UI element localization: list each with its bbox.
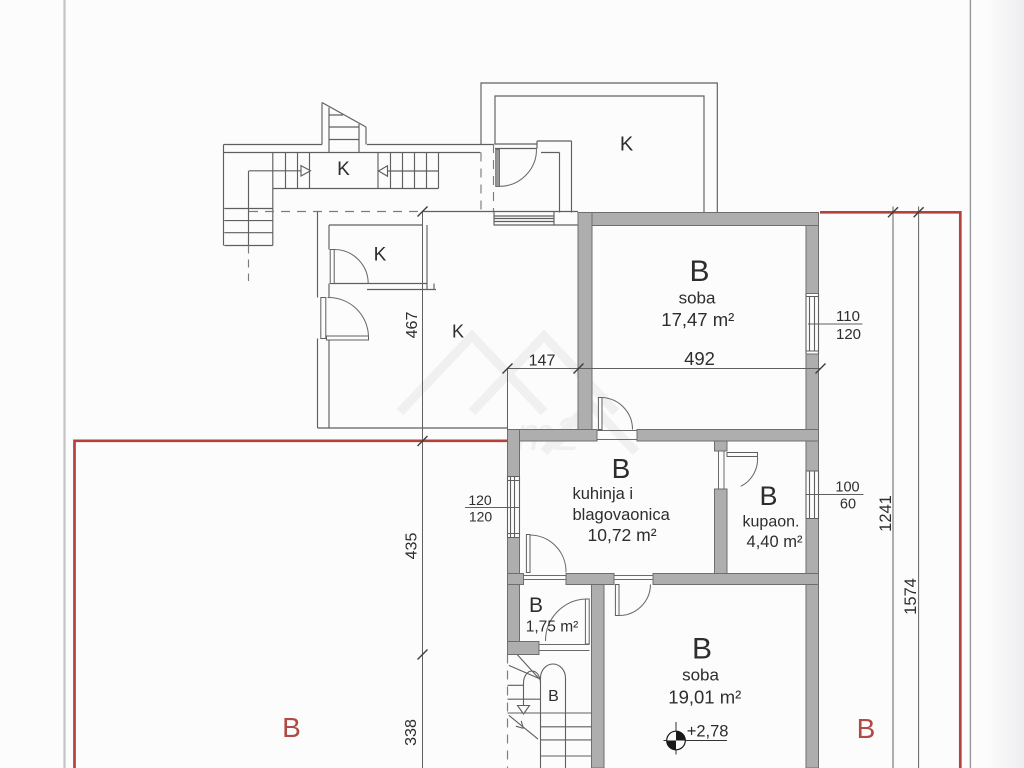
svg-text:147: 147 xyxy=(529,353,556,370)
svg-text:B: B xyxy=(548,688,559,705)
svg-text:1241: 1241 xyxy=(877,495,895,532)
svg-text:492: 492 xyxy=(684,348,715,369)
svg-text:soba: soba xyxy=(679,288,716,307)
svg-text:60: 60 xyxy=(840,497,856,513)
svg-text:B: B xyxy=(692,633,712,666)
svg-text:10,72 m²: 10,72 m² xyxy=(588,525,657,545)
svg-text:K: K xyxy=(452,322,464,342)
svg-text:B: B xyxy=(759,481,777,511)
svg-text:17,47 m²: 17,47 m² xyxy=(661,309,734,330)
svg-text:100: 100 xyxy=(835,479,859,495)
svg-text:B: B xyxy=(689,255,709,288)
svg-text:B: B xyxy=(529,594,543,617)
svg-text:338: 338 xyxy=(403,719,420,746)
svg-text:467: 467 xyxy=(404,312,421,339)
svg-text:K: K xyxy=(337,159,350,180)
svg-text:soba: soba xyxy=(682,665,719,684)
svg-text:1574: 1574 xyxy=(902,578,920,615)
svg-text:+2,78: +2,78 xyxy=(687,723,729,741)
svg-text:4,40 m²: 4,40 m² xyxy=(747,533,803,551)
svg-text:K: K xyxy=(620,134,634,156)
svg-text:K: K xyxy=(374,245,387,266)
svg-text:110: 110 xyxy=(836,308,860,325)
svg-text:120: 120 xyxy=(836,326,861,343)
svg-text:120: 120 xyxy=(468,492,492,508)
svg-text:kuhinja i: kuhinja i xyxy=(573,485,634,503)
svg-text:435: 435 xyxy=(404,533,421,560)
svg-text:120: 120 xyxy=(469,509,493,525)
svg-text:1,75 m²: 1,75 m² xyxy=(526,619,579,636)
svg-text:B: B xyxy=(857,713,876,744)
svg-text:19,01 m²: 19,01 m² xyxy=(668,687,741,708)
svg-text:B: B xyxy=(282,712,301,743)
svg-text:B: B xyxy=(612,453,631,484)
svg-text:blagovaonica: blagovaonica xyxy=(573,506,671,524)
svg-text:kupaon.: kupaon. xyxy=(743,513,800,530)
